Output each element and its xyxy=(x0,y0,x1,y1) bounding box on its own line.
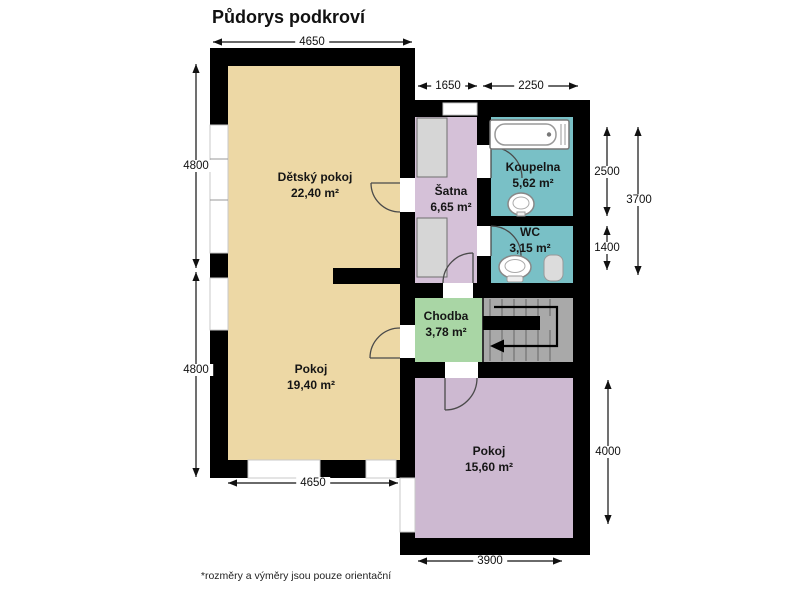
dimension-3900: 3900 xyxy=(473,555,507,567)
dimension-4000: 4000 xyxy=(591,446,625,458)
room-label-koupelna: Koupelna 5,62 m² xyxy=(506,160,561,192)
window-icon xyxy=(248,460,320,478)
dimension-left-upper-4800: 4800 xyxy=(179,160,213,172)
dimension-bottom-4650: 4650 xyxy=(296,477,330,489)
room-name: Chodba xyxy=(424,309,469,325)
partition-wall-between-rooms xyxy=(333,268,400,284)
room-area: 5,62 m² xyxy=(506,176,561,192)
room-area: 3,78 m² xyxy=(424,325,469,341)
room-label-satna: Šatna 6,65 m² xyxy=(430,184,471,216)
room-area: 22,40 m² xyxy=(278,186,353,202)
dimension-1650: 1650 xyxy=(431,80,465,92)
room-area: 3,15 m² xyxy=(509,241,550,257)
footnote: *rozměry a výměry jsou pouze orientační xyxy=(201,570,391,582)
room-name: Dětský pokoj xyxy=(278,170,353,186)
room-label-wc: WC 3,15 m² xyxy=(509,225,550,257)
dimension-2250: 2250 xyxy=(514,80,548,92)
window-icon xyxy=(366,460,396,478)
window-icon xyxy=(210,278,228,330)
dimension-top-4650: 4650 xyxy=(295,36,329,48)
room-label-detsky-pokoj: Dětský pokoj 22,40 m² xyxy=(278,170,353,202)
room-name: Pokoj xyxy=(287,362,335,378)
room-name: WC xyxy=(509,225,550,241)
room-name: Pokoj xyxy=(465,444,513,460)
dimension-1400: 1400 xyxy=(590,242,624,254)
room-detsky-pokoj-area xyxy=(228,66,400,460)
window-icon xyxy=(210,125,228,253)
room-label-pokoj-dolni: Pokoj 15,60 m² xyxy=(465,444,513,476)
window-icon xyxy=(400,478,415,532)
page-title: Půdorys podkroví xyxy=(212,7,365,28)
floor-plan-drawing xyxy=(0,0,800,600)
room-area: 15,60 m² xyxy=(465,460,513,476)
window-icon xyxy=(443,103,477,115)
dimension-left-lower-4800: 4800 xyxy=(179,364,213,376)
floor-plan-page: Půdorys podkroví Dětský pokoj 22,40 m² Š… xyxy=(0,0,800,600)
room-label-pokoj-horni: Pokoj 19,40 m² xyxy=(287,362,335,394)
bathtub-icon xyxy=(490,120,569,149)
room-area: 19,40 m² xyxy=(287,378,335,394)
sink-icon xyxy=(508,193,534,216)
room-name: Koupelna xyxy=(506,160,561,176)
room-area: 6,65 m² xyxy=(430,200,471,216)
room-name: Šatna xyxy=(430,184,471,200)
dimension-2500: 2500 xyxy=(590,166,624,178)
corner-basin-icon xyxy=(544,255,563,281)
dimension-3700: 3700 xyxy=(622,194,656,206)
room-label-chodba: Chodba 3,78 m² xyxy=(424,309,469,341)
